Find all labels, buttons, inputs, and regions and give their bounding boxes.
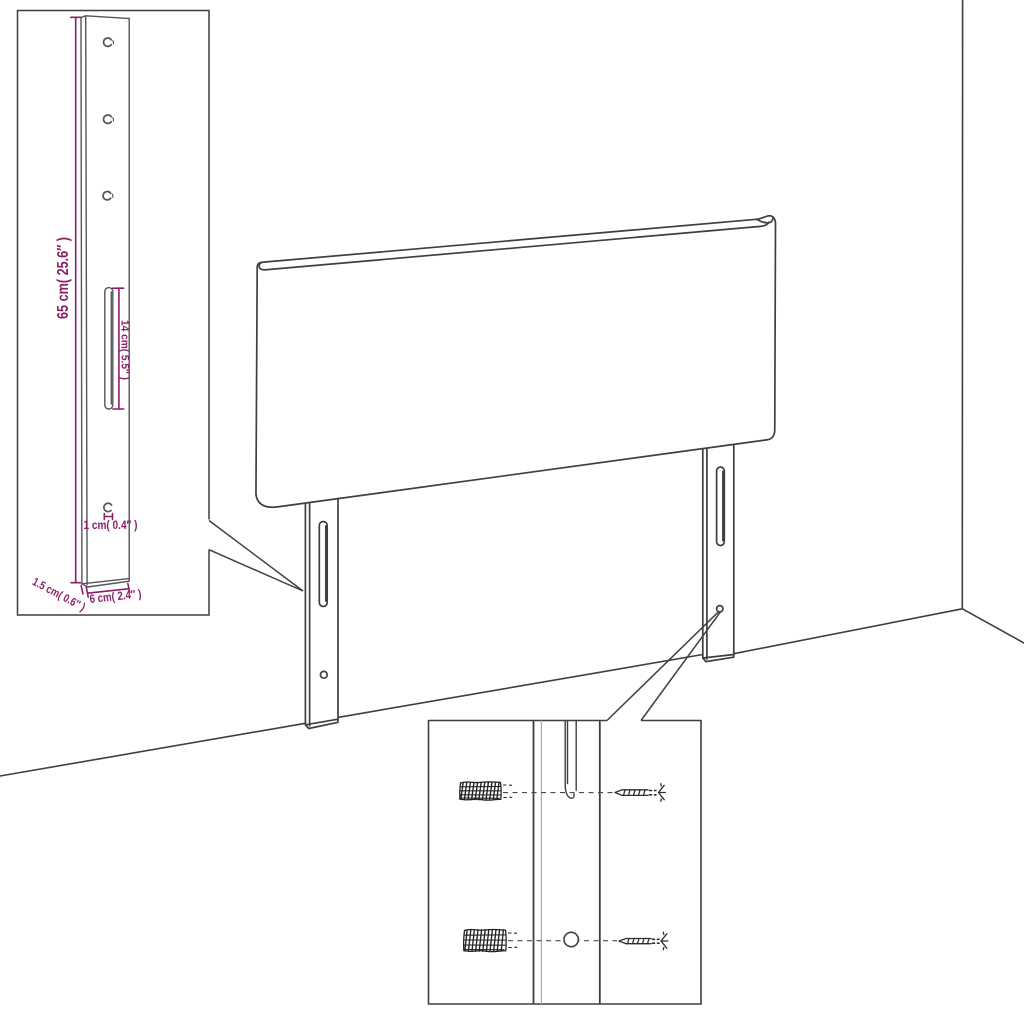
svg-text:14 cm( 5.5″ ): 14 cm( 5.5″ ) [118, 320, 130, 380]
svg-text:1 cm( 0.4″ ): 1 cm( 0.4″ ) [84, 520, 138, 532]
svg-text:65 cm( 25.6″ ): 65 cm( 25.6″ ) [55, 237, 72, 319]
